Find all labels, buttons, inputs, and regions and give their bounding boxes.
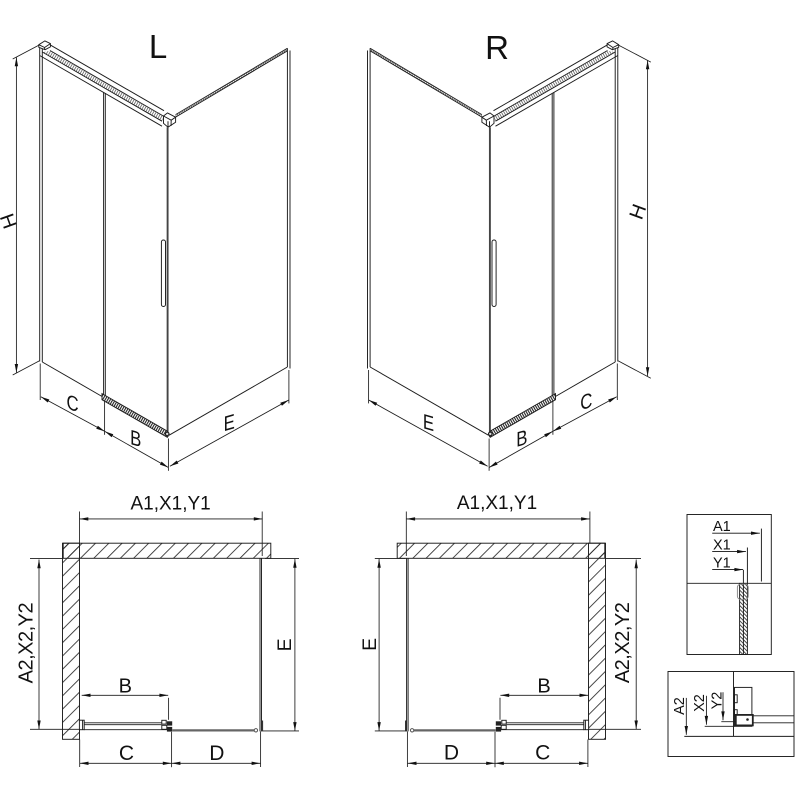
svg-text:R: R — [485, 29, 509, 66]
svg-text:C: C — [535, 742, 550, 765]
svg-text:X2: X2 — [692, 694, 708, 712]
svg-text:E: E — [359, 638, 381, 651]
svg-text:B: B — [119, 676, 132, 698]
svg-text:B: B — [537, 676, 550, 698]
svg-text:A2,X2,Y2: A2,X2,Y2 — [612, 602, 634, 683]
svg-text:L: L — [149, 28, 167, 65]
svg-text:D: D — [444, 742, 459, 765]
svg-text:C: C — [119, 742, 134, 765]
svg-text:X1: X1 — [713, 538, 731, 554]
svg-text:Y2: Y2 — [709, 692, 725, 710]
svg-text:A2: A2 — [672, 697, 688, 715]
svg-text:C: C — [580, 389, 592, 415]
svg-text:E: E — [423, 411, 434, 437]
svg-text:A1: A1 — [713, 519, 731, 535]
svg-text:B: B — [130, 427, 141, 453]
svg-text:C: C — [66, 391, 78, 417]
svg-text:E: E — [224, 411, 235, 437]
svg-text:A2,X2,Y2: A2,X2,Y2 — [16, 602, 38, 683]
svg-text:B: B — [516, 426, 527, 452]
svg-text:A1,X1,Y1: A1,X1,Y1 — [457, 493, 537, 514]
svg-text:E: E — [274, 638, 296, 651]
svg-text:A1,X1,Y1: A1,X1,Y1 — [130, 494, 210, 515]
svg-text:D: D — [209, 742, 224, 765]
svg-text:Y1: Y1 — [713, 556, 731, 572]
